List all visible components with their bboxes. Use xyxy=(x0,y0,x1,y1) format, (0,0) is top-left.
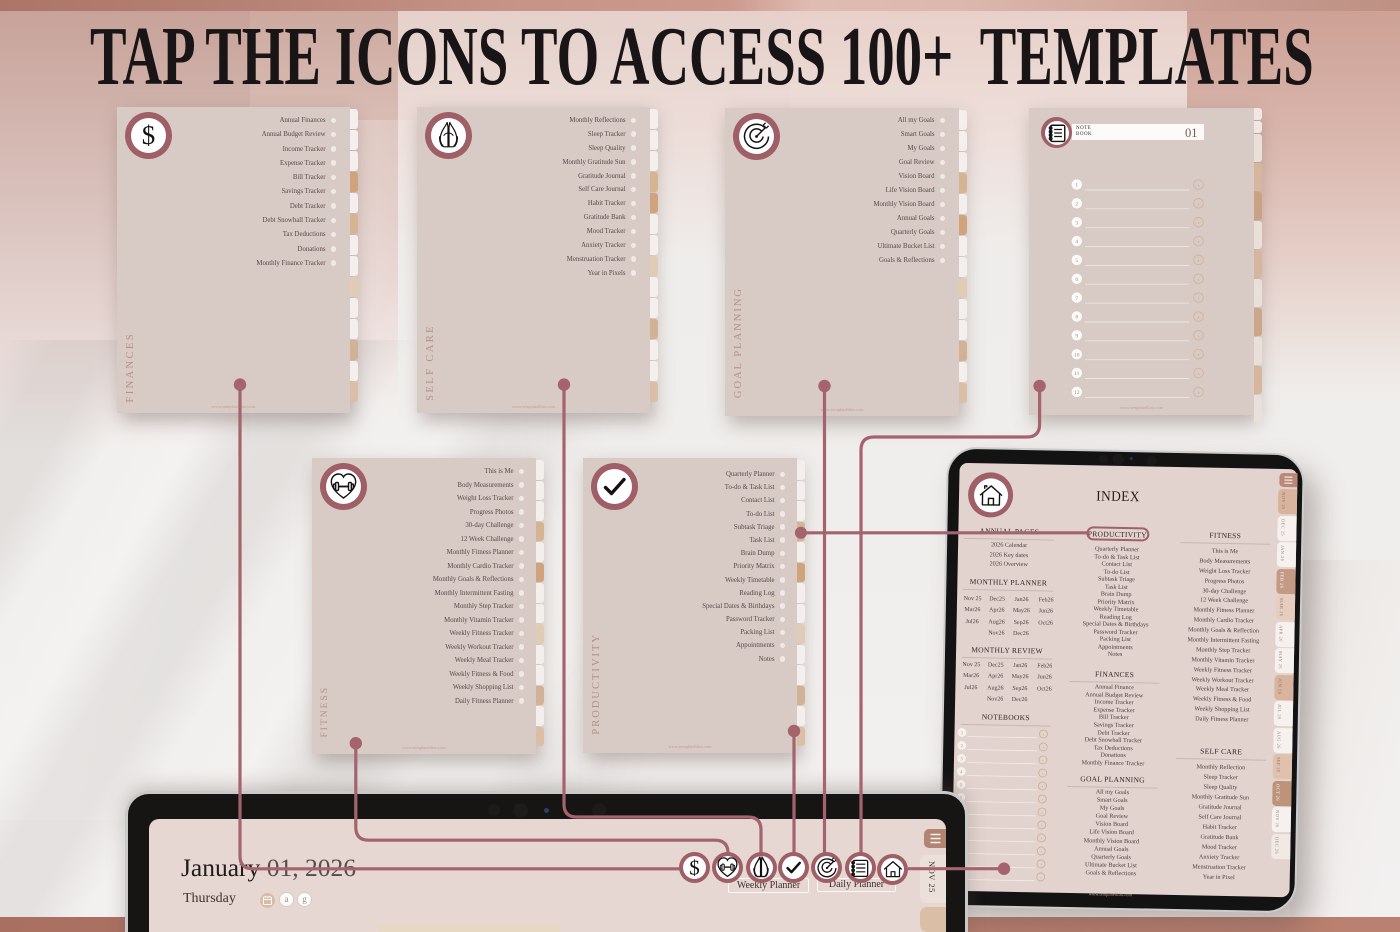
svg-text:$: $ xyxy=(689,856,700,879)
